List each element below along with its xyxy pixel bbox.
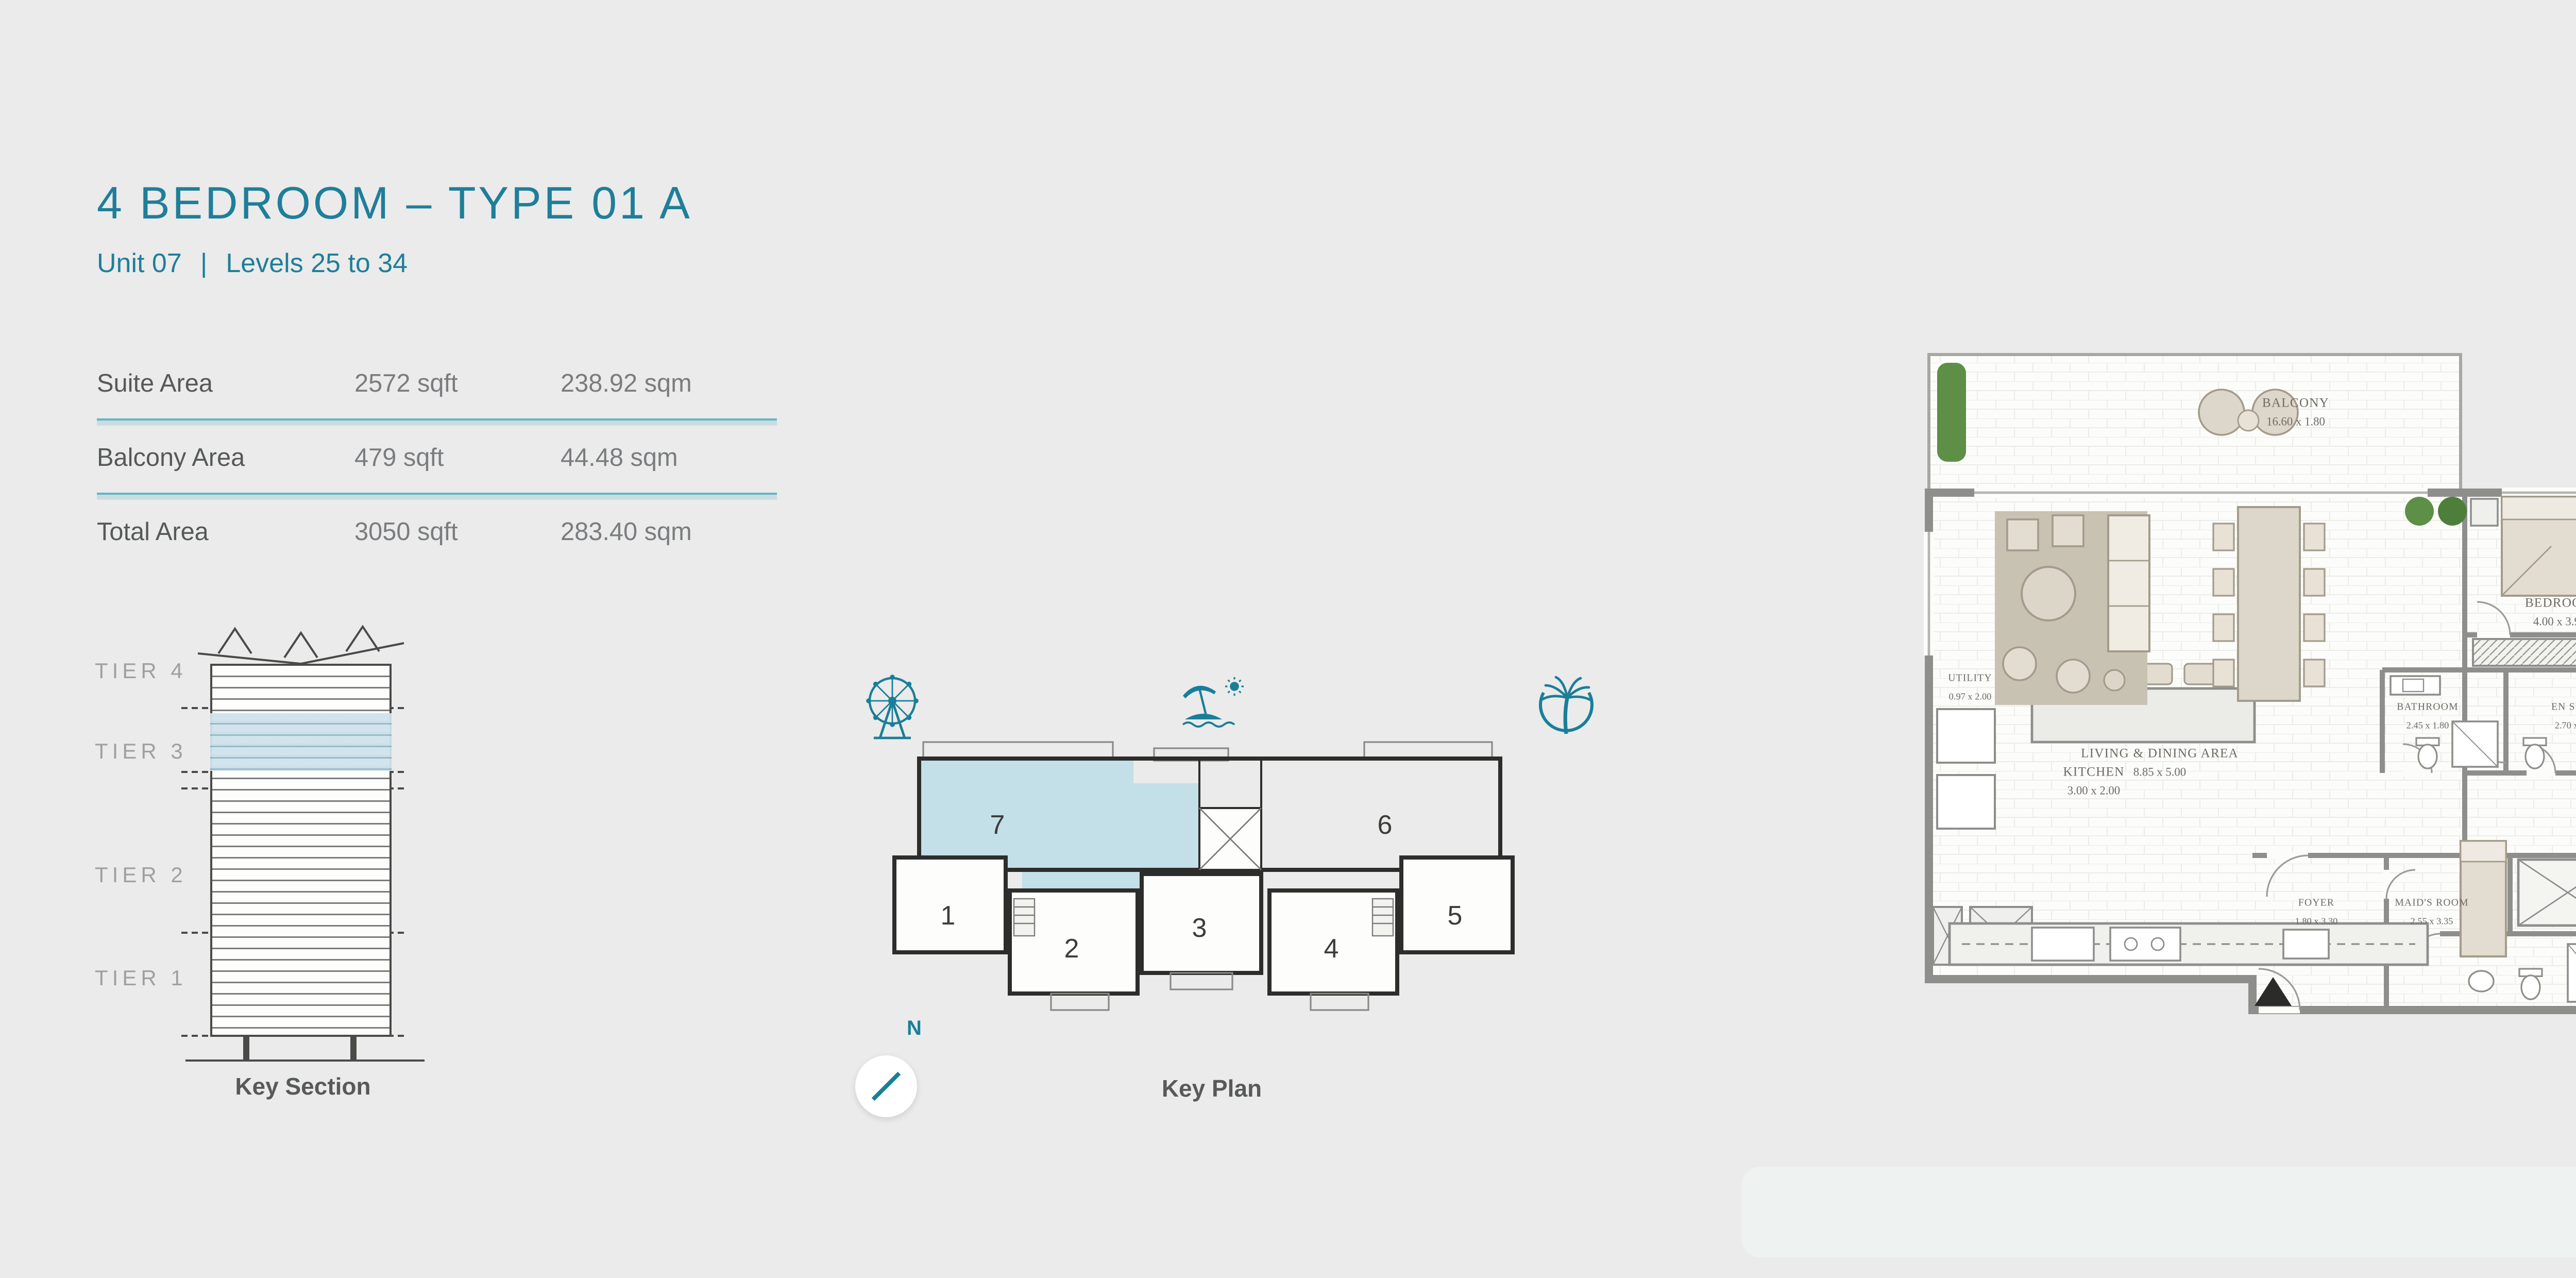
room-label-kitchen: KITCHEN 3.00 x 2.00 — [2063, 764, 2125, 803]
row-sqm: 283.40 sqm — [561, 516, 777, 545]
unit-1-number: 1 — [941, 900, 956, 931]
balcony-main-area — [1929, 355, 2461, 493]
area-table: Suite Area 2572 sqft 238.92 sqm Balcony … — [97, 346, 777, 567]
row-label: Total Area — [97, 516, 354, 545]
tower-base-leg — [350, 1037, 355, 1060]
levels-range: Levels 25 to 34 — [226, 247, 408, 278]
tower-ground-line — [185, 1058, 425, 1061]
key-section-caption: Key Section — [190, 1076, 416, 1101]
tier-1-label: TIER 1 — [95, 967, 187, 991]
unit-number: Unit 07 — [97, 247, 182, 278]
unit-subtitle: Unit 07 | Levels 25 to 34 — [97, 247, 408, 278]
table-row: Suite Area 2572 sqft 238.92 sqm — [97, 346, 777, 421]
ferris-wheel-icon — [859, 672, 925, 742]
table-row: Total Area 3050 sqft 283.40 sqm — [97, 495, 777, 567]
room-label-utility: UTILITY 0.97 x 2.00 — [1948, 673, 1992, 704]
unit-5-number: 5 — [1448, 900, 1463, 931]
compass-needle — [872, 1072, 901, 1101]
row-sqm: 238.92 sqm — [561, 368, 777, 397]
room-label-bedroom-1: BEDROOM 4.00 x 3.90 — [2525, 595, 2576, 634]
compass-icon — [855, 1055, 917, 1117]
page: 4 BEDROOM – TYPE 01 A Unit 07 | Levels 2… — [0, 0, 2576, 1278]
tower-crown-icon — [194, 620, 408, 664]
tower-highlight-band — [210, 713, 392, 771]
unit-2-number: 2 — [1064, 933, 1079, 964]
key-plan-footprint — [890, 734, 1533, 1027]
row-label: Suite Area — [97, 368, 354, 397]
row-sqm: 44.48 sqm — [561, 442, 777, 471]
tier-4-label: TIER 4 — [95, 660, 187, 684]
room-label-bathroom-1: BATHROOM 2.45 x 1.80 — [2397, 702, 2458, 733]
room-label-maids-room: MAID'S ROOM 2.55 x 3.35 — [2395, 898, 2468, 929]
row-sqft: 2572 sqft — [354, 368, 561, 397]
beach-icon — [1179, 676, 1249, 730]
page-title: 4 BEDROOM – TYPE 01 A — [97, 177, 692, 231]
room-label-ensuite-1: EN SUITE 2.70 x 1.90 — [2551, 702, 2576, 733]
row-sqft: 3050 sqft — [354, 516, 561, 545]
unit-4-number: 4 — [1324, 933, 1339, 964]
row-sqft: 479 sqft — [354, 442, 561, 471]
room-label-balcony-main: BALCONY 16.60 x 1.80 — [2262, 395, 2329, 434]
floor-plan-drawing — [1912, 326, 2576, 1068]
tower-base-leg — [243, 1037, 248, 1060]
unit-7-number: 7 — [990, 809, 1005, 840]
room-label-foyer: FOYER 1.80 x 3.30 — [2295, 898, 2338, 929]
tier-2-label: TIER 2 — [95, 864, 187, 888]
key-plan-caption: Key Plan — [1088, 1078, 1335, 1103]
north-label: N — [907, 1018, 922, 1041]
floor-plan: BALCONY 16.60 x 1.80 LIVING & DINING ARE… — [1912, 326, 2576, 1068]
table-row: Balcony Area 479 sqft 44.48 sqm — [97, 421, 777, 495]
tier-3-label: TIER 3 — [95, 740, 187, 765]
unit-6-number: 6 — [1378, 809, 1393, 840]
subtitle-separator: | — [200, 247, 208, 278]
footer-band — [1741, 1167, 2576, 1257]
row-label: Balcony Area — [97, 442, 354, 471]
palm-tree-icon — [1535, 672, 1597, 742]
unit-3-number: 3 — [1192, 912, 1207, 943]
